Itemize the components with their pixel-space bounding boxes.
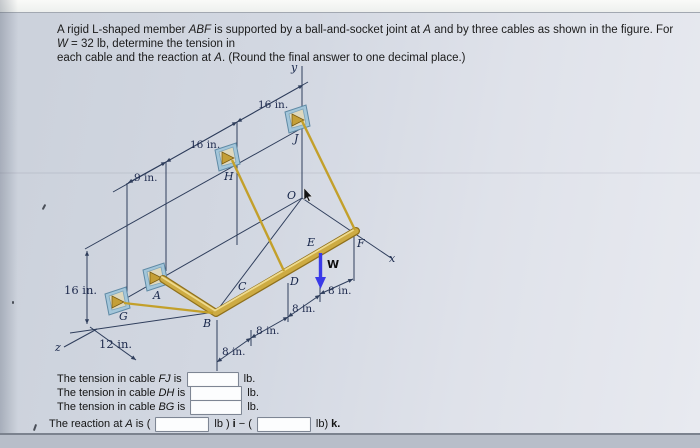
label-point-c: C (238, 280, 247, 293)
answer-row-dh: The tension in cableDHislb. (57, 386, 340, 400)
dim-label-16in-top: 16 in. (258, 99, 288, 111)
top-dimension-line (113, 82, 308, 192)
photo-artifact (42, 204, 47, 210)
mouse-cursor (304, 188, 312, 202)
label-x-axis: x (389, 252, 396, 265)
reaction-i-input[interactable] (155, 417, 209, 432)
label-point-e: E (306, 236, 315, 249)
cable-name-dh: DH (158, 387, 174, 399)
wall-floor-edge-og (125, 198, 302, 299)
point-name-a: A (125, 418, 132, 430)
dimension-16in-mid (166, 122, 237, 162)
problem-line-1: A rigid L-shaped member ABF is supported… (57, 23, 681, 51)
tension-fj-input[interactable] (187, 372, 239, 387)
label-point-d: D (289, 275, 299, 288)
answer-section: The tension in cableFJislb. The tension … (49, 372, 340, 431)
anchor-j (285, 105, 310, 133)
dimension-8in-4 (320, 279, 353, 294)
label-point-o: O (287, 189, 296, 202)
cable-fj (302, 121, 355, 230)
reaction-k-input[interactable] (257, 417, 311, 432)
dim-label-8in-3: 8 in. (292, 303, 315, 315)
dimension-8in-2 (251, 317, 288, 338)
weight-arrow (315, 253, 326, 289)
unit-vector-k: k. (331, 418, 340, 430)
dim-label-8in-1: 8 in. (222, 346, 245, 358)
wall-anchor-line (85, 128, 302, 249)
problem-text: A rigid L-shaped member ABF is supported… (57, 23, 681, 65)
dimension-16in-top (237, 85, 303, 122)
problem-line-2: each cable and the reaction at A. (Round… (57, 51, 681, 65)
anchor-a (143, 263, 168, 291)
cable-name-fj: FJ (158, 373, 170, 385)
label-z-axis: z (54, 341, 61, 354)
unit-vector-i: i (233, 418, 236, 430)
beam-abf (162, 229, 356, 313)
wall-base-line (70, 312, 215, 333)
anchor-g (105, 287, 130, 315)
cable-name-bg: BG (158, 401, 174, 413)
dim-label-12in: 12 in. (99, 337, 132, 351)
dim-label-8in-4: 8 in. (328, 285, 351, 297)
answer-row-reaction: The reaction atAis (lb )i− (lb)k. (49, 417, 340, 431)
tension-dh-input[interactable] (190, 386, 242, 401)
dimension-12in (90, 327, 136, 360)
cable-bg (124, 303, 213, 313)
dim-label-8in-2: 8 in. (256, 325, 279, 337)
screen-glare-streak (0, 172, 700, 174)
photo-artifact (33, 424, 37, 431)
dim-label-16in-left: 16 in. (64, 283, 97, 297)
label-point-j: J (292, 132, 299, 145)
dimension-8in-3 (288, 295, 320, 317)
label-point-a: A (152, 289, 161, 302)
photo-artifact (12, 301, 14, 304)
x-axis (302, 198, 391, 258)
label-point-f: F (356, 237, 365, 250)
label-point-g: G (119, 310, 128, 323)
answer-row-bg: The tension in cableBGislb. (57, 400, 340, 414)
dim-label-16in-mid: 16 in. (190, 139, 220, 151)
label-point-b: B (202, 317, 211, 330)
floor-edge-ob (216, 198, 302, 312)
label-weight: W (327, 258, 339, 271)
dimension-8in-1 (217, 338, 251, 362)
z-axis (64, 329, 97, 347)
tension-bg-input[interactable] (190, 400, 242, 415)
photo-top-strip (0, 0, 700, 13)
anchor-h (215, 143, 240, 171)
answer-row-fj: The tension in cableFJislb. (57, 372, 340, 386)
photo-left-vignette (0, 0, 18, 446)
cable-dh (232, 160, 284, 271)
